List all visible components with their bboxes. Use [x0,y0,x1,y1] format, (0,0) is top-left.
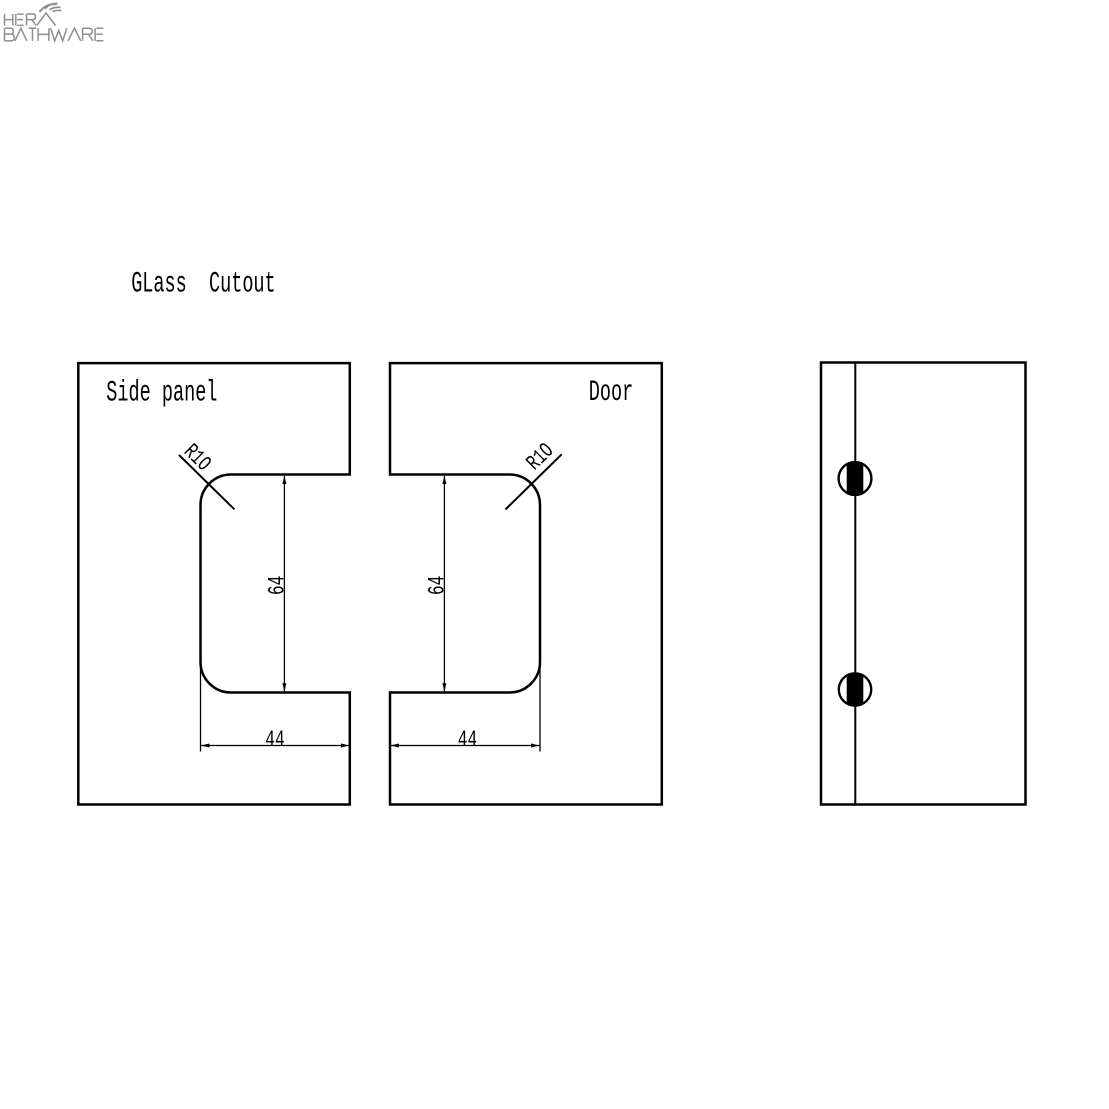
svg-text:64: 64 [264,576,291,595]
svg-text:Door: Door [589,377,633,409]
svg-text:44: 44 [265,726,284,753]
svg-text:44: 44 [458,726,477,753]
svg-text:GLass Cutout: GLass Cutout [131,269,275,301]
svg-text:Side panel: Side panel [106,378,217,410]
svg-text:64: 64 [424,576,451,595]
